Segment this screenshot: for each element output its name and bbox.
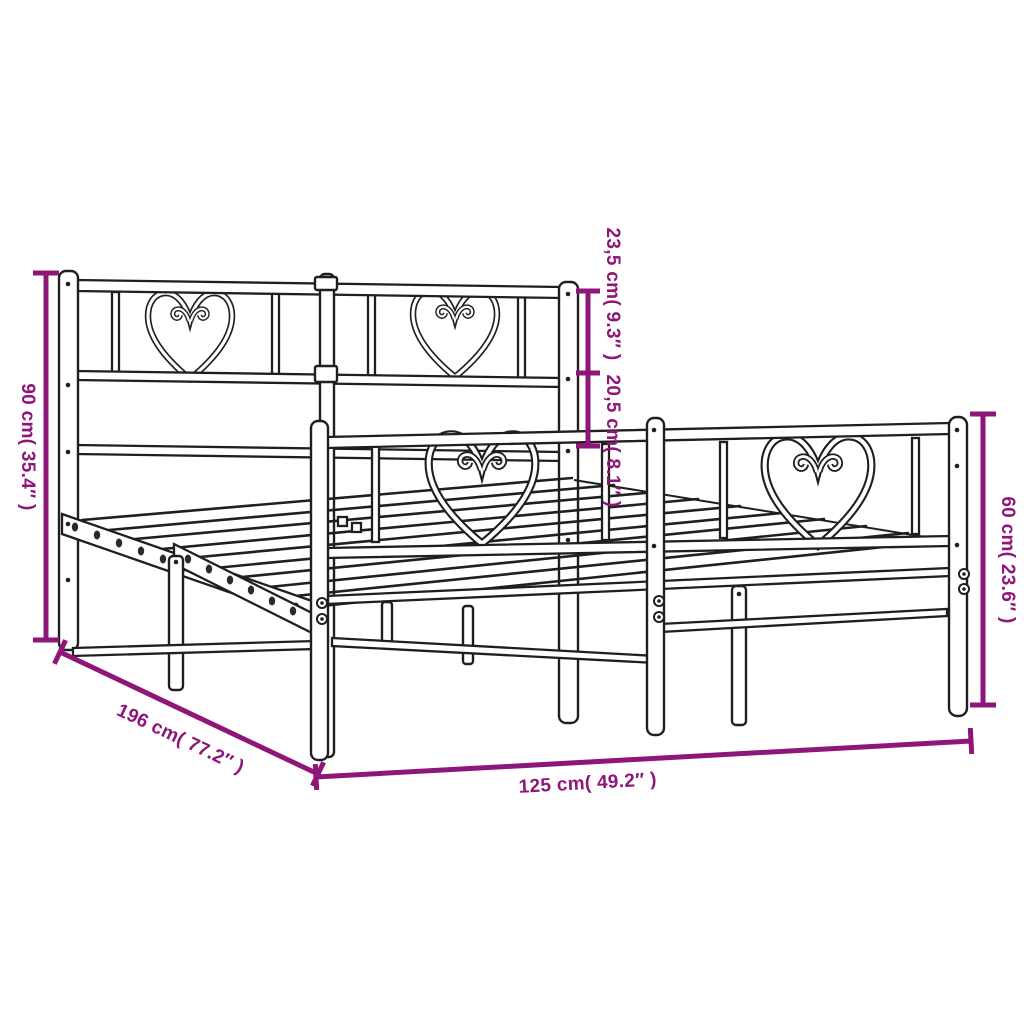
dimension-label-footboard-height: 60 cm( 23.6″ )	[997, 496, 1018, 623]
dimension-bed-length: 196 cm( 77.2″ )	[54, 640, 323, 786]
support-leg	[732, 586, 746, 725]
footboard-left-post	[311, 421, 328, 760]
footboard-right-post	[949, 417, 967, 716]
headboard-heart-right	[413, 291, 497, 377]
right-support-bar	[660, 609, 947, 632]
footboard-spindle	[720, 442, 727, 538]
headboard-spindle	[272, 292, 279, 380]
headboard-heart-left	[148, 293, 232, 379]
headboard-left-post	[59, 271, 78, 650]
support-leg	[169, 556, 183, 690]
dimension-footboard-height: 60 cm( 23.6″ )	[970, 414, 1018, 705]
dimension-label-bed-length: 196 cm( 77.2″ )	[113, 700, 247, 778]
headboard-spindle	[368, 292, 375, 380]
far-side-rail	[574, 480, 950, 541]
footboard-top-rail	[326, 423, 950, 448]
footboard-bottom-rail	[326, 536, 950, 558]
support-leg	[382, 602, 392, 646]
left-support-bar	[73, 641, 315, 656]
mid-support-bar	[332, 638, 656, 663]
headboard-post-clip	[315, 366, 337, 382]
headboard-spindle	[518, 292, 525, 380]
slat-bracket	[352, 523, 361, 532]
support-leg	[463, 606, 473, 664]
dimension-label-headboard-height: 90 cm( 35.4″ )	[17, 383, 38, 510]
footboard-heart-right	[765, 436, 872, 545]
headboard-spindle	[112, 292, 119, 380]
headboard-post-clip	[315, 277, 337, 290]
dimension-label-bed-width: 125 cm( 49.2″ )	[518, 769, 657, 798]
dimension-headboard-height: 90 cm( 35.4″ )	[17, 273, 59, 640]
dimension-bed-width: 125 cm( 49.2″ )	[315, 728, 971, 798]
slat-bracket	[338, 517, 347, 526]
bed-frame-dimension-diagram: 90 cm( 35.4″ ) 23,5 cm( 9.3″ ) 20,5 cm( …	[0, 0, 1024, 1024]
diagram-drawing: 90 cm( 35.4″ ) 23,5 cm( 9.3″ ) 20,5 cm( …	[0, 0, 1024, 1024]
dimension-label-headboard-mid-section: 20,5 cm( 8.1″ )	[602, 375, 623, 508]
footboard-center-post	[647, 418, 664, 735]
footboard-spindle	[912, 438, 919, 534]
dimension-label-headboard-top-section: 23,5 cm( 9.3″ )	[602, 228, 623, 361]
footboard-spindle	[372, 446, 379, 542]
dimension-headboard-sections: 23,5 cm( 9.3″ ) 20,5 cm( 8.1″ )	[576, 228, 623, 508]
